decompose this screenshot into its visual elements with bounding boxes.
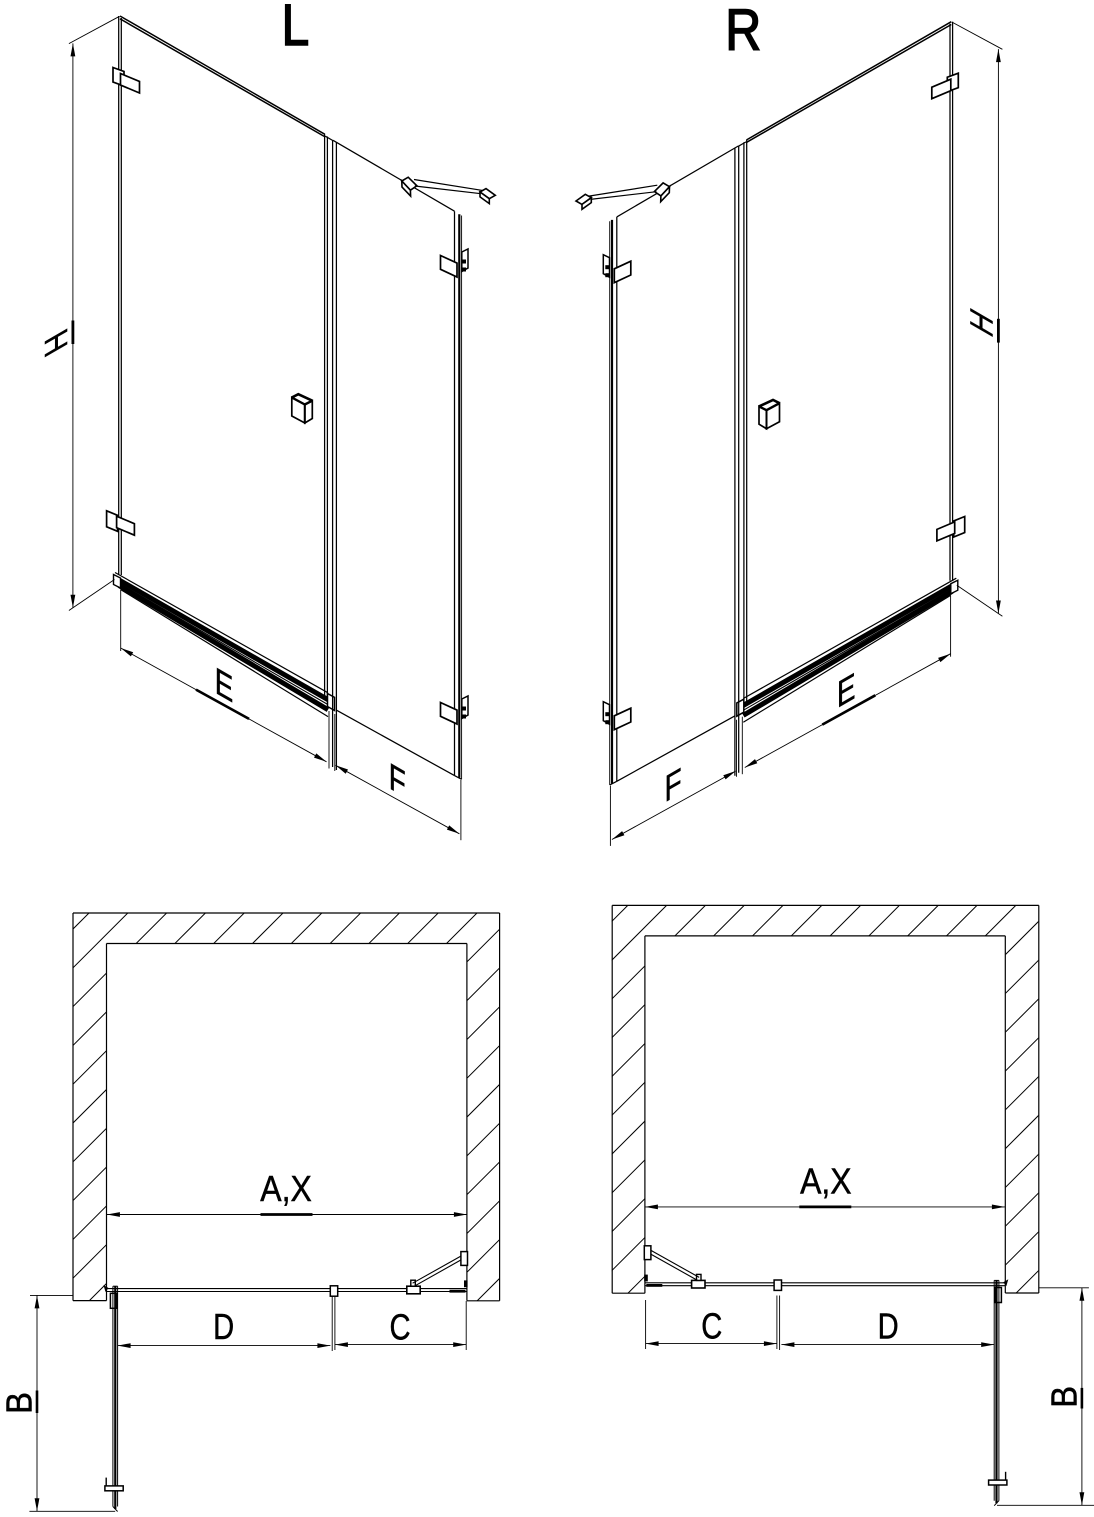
svg-text:C: C: [701, 1305, 722, 1346]
svg-text:A,X: A,X: [800, 1162, 852, 1202]
svg-text:B: B: [1045, 1386, 1085, 1408]
svg-text:B: B: [0, 1392, 40, 1414]
svg-text:D: D: [213, 1306, 234, 1347]
svg-text:L: L: [282, 0, 310, 58]
svg-text:R: R: [725, 0, 761, 62]
svg-text:A,X: A,X: [260, 1169, 312, 1209]
svg-text:C: C: [389, 1306, 410, 1347]
svg-text:D: D: [878, 1305, 899, 1346]
